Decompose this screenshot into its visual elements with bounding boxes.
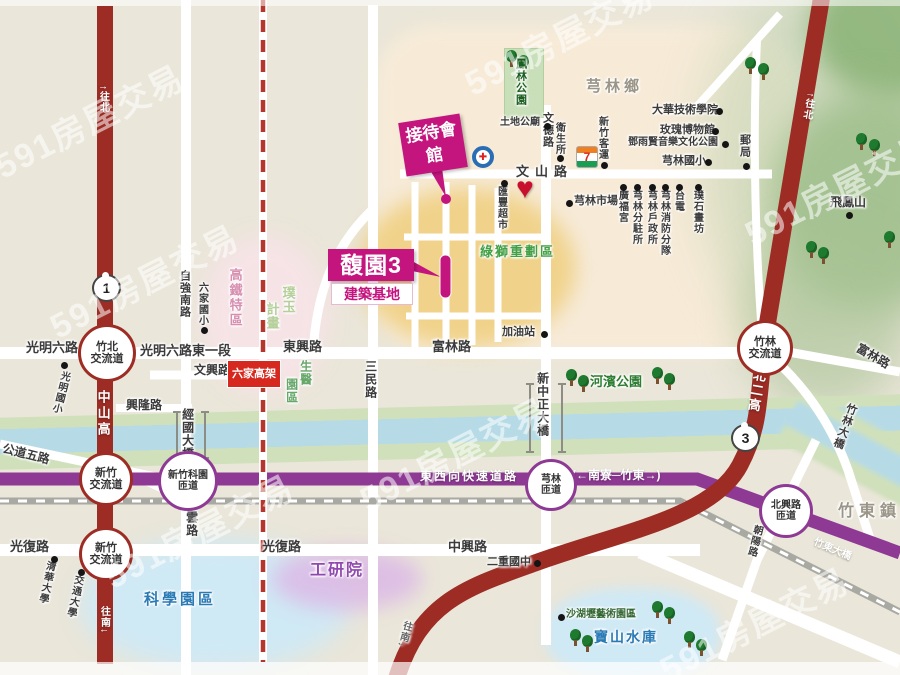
map-label-24: 工研院 bbox=[310, 563, 364, 580]
tree-icon bbox=[869, 139, 880, 156]
tree-icon bbox=[664, 373, 675, 390]
map-label-5: 興隆路 bbox=[126, 399, 162, 412]
map-label-23: 科學園區 bbox=[144, 592, 216, 608]
map-label-1: 光明六路東一段 bbox=[140, 344, 231, 358]
tree-icon bbox=[696, 639, 707, 656]
map-label-28: (←南寮─竹東→) bbox=[572, 469, 661, 482]
interchange-label: 新竹 bbox=[95, 542, 117, 554]
poi-dot bbox=[541, 331, 548, 338]
map-label-33: 新中正大橋 bbox=[536, 372, 549, 437]
interchange-label: 竹林 bbox=[754, 336, 776, 348]
map-label-7: 光復路 bbox=[262, 540, 301, 554]
map-label-44: 璞玉 bbox=[281, 286, 295, 314]
tree-icon bbox=[652, 601, 663, 618]
map-label-46: 生醫 bbox=[299, 360, 312, 386]
poi-dot bbox=[51, 556, 58, 563]
poi-dot bbox=[557, 155, 564, 162]
map-label-38: 衛生所 bbox=[553, 122, 564, 155]
poi-dot bbox=[601, 162, 608, 169]
map-label-26: 沙湖壢藝術園區 bbox=[566, 610, 636, 621]
poi-dot bbox=[534, 560, 541, 567]
project-name-callout: 馥園3 bbox=[328, 249, 414, 281]
poi-dot bbox=[716, 108, 723, 115]
map-canvas: 7 ✚ ♥ 接待會館 馥園3 建築基地 六家高架 光明六路光明六路東一段東興路富… bbox=[0, 0, 900, 675]
poi-dot bbox=[676, 184, 683, 191]
tree-icon bbox=[664, 607, 675, 624]
map-label-19: 芎林鄉 bbox=[586, 79, 643, 95]
map-label-21: 河濱公園 bbox=[590, 375, 642, 389]
tree-icon bbox=[758, 63, 769, 80]
interchange-label: 新竹 bbox=[95, 467, 117, 479]
tree-icon bbox=[856, 133, 867, 150]
map-label-43: 高鐵特區 bbox=[228, 268, 242, 328]
map-label-55: 芎林戶政所 bbox=[645, 190, 656, 245]
poi-dot bbox=[558, 614, 565, 621]
interchange-badge: 新竹交流道 bbox=[79, 527, 133, 581]
interchange-label: 交流道 bbox=[90, 554, 123, 566]
hsr-station-box: 六家高架 bbox=[227, 360, 281, 388]
map-label-56: 芎林消防分隊 bbox=[658, 190, 669, 256]
motel-heart-icon: ♥ bbox=[516, 174, 534, 204]
poi-dot bbox=[662, 184, 669, 191]
interchange-label: 匝道 bbox=[178, 481, 198, 492]
map-label-41: 自強南路 bbox=[178, 270, 190, 318]
map-label-22: 綠獅重劃區 bbox=[480, 245, 555, 259]
interchange-label: 芎林 bbox=[541, 474, 561, 485]
interchange-badge: 新竹交流道 bbox=[79, 452, 133, 506]
tree-icon bbox=[570, 629, 581, 646]
tree-icon bbox=[684, 631, 695, 648]
interchange-badge: 芎林匝道 bbox=[525, 459, 577, 511]
tree-icon bbox=[566, 369, 577, 386]
interchange-label: 北興路 bbox=[771, 500, 801, 511]
interchange-badge: 北興路匝道 bbox=[759, 484, 813, 538]
map-label-4: 文興路 bbox=[194, 364, 230, 377]
interchange-badge: 竹林交流道 bbox=[737, 320, 793, 376]
poi-dot bbox=[544, 123, 551, 130]
map-label-42: 六家國小 bbox=[196, 282, 207, 326]
interchange-label: 匝道 bbox=[541, 485, 561, 496]
interchange-label: 新竹科園 bbox=[168, 470, 208, 481]
map-label-12: 二重國中 bbox=[487, 557, 531, 569]
poi-dot bbox=[705, 159, 712, 166]
map-label-2: 東興路 bbox=[283, 340, 322, 354]
interchange-label: 竹北 bbox=[96, 341, 118, 353]
site-marker bbox=[440, 255, 451, 298]
reception-dot bbox=[441, 194, 451, 204]
tree-icon bbox=[582, 635, 593, 652]
map-label-37: 文德路 bbox=[541, 112, 553, 148]
poi-dot bbox=[201, 327, 208, 334]
map-label-13: 芎林市場 bbox=[574, 196, 618, 208]
map-label-27: 東西向快速道路 bbox=[420, 470, 518, 483]
map-label-25: 寶山水庫 bbox=[594, 630, 658, 645]
map-label-20: 竹東鎮 bbox=[838, 504, 900, 521]
poi-dot bbox=[634, 184, 641, 191]
interchange-badge: 新竹科園匝道 bbox=[158, 451, 218, 511]
seven-eleven-icon: 7 bbox=[576, 146, 598, 168]
map-label-63: 往南↓ bbox=[98, 606, 109, 634]
map-label-53: 廣福宮 bbox=[616, 190, 627, 223]
map-label-52: 郵局 bbox=[738, 134, 750, 158]
interchange-badge: 竹北交流道 bbox=[78, 324, 136, 382]
project-subtitle-callout: 建築基地 bbox=[331, 283, 413, 305]
map-label-65: 鳳林公園 bbox=[514, 58, 526, 106]
tree-icon bbox=[652, 367, 663, 384]
interchange-label: 交流道 bbox=[90, 479, 123, 491]
map-label-8: 中興路 bbox=[448, 540, 487, 554]
poi-dot bbox=[722, 141, 729, 148]
map-label-15: 玫瑰博物館 bbox=[660, 125, 715, 137]
poi-dot bbox=[846, 212, 853, 219]
map-label-18: 飛鳳山 bbox=[830, 196, 866, 209]
interchange-label: 交流道 bbox=[749, 348, 782, 360]
highway-3-shield: 3 bbox=[731, 424, 760, 452]
poi-dot bbox=[649, 184, 656, 191]
highway-1-shield: 1 bbox=[92, 274, 121, 302]
reception-hall-callout: 接待會館 bbox=[398, 113, 468, 176]
map-label-36: 三民路 bbox=[364, 360, 377, 399]
map-label-11: 加油站 bbox=[502, 327, 535, 339]
tree-icon bbox=[745, 57, 756, 74]
clinic-icon: ✚ bbox=[472, 146, 494, 168]
poi-dot bbox=[566, 200, 573, 207]
map-label-57: 台電 bbox=[672, 190, 683, 212]
poi-dot bbox=[61, 362, 68, 369]
map-label-0: 光明六路 bbox=[26, 341, 78, 355]
poi-dot bbox=[712, 128, 719, 135]
poi-dot bbox=[501, 180, 508, 187]
map-label-6: 光復路 bbox=[10, 540, 49, 554]
tree-icon bbox=[578, 375, 589, 392]
map-label-16: 鄧雨賢音樂文化公園 bbox=[628, 138, 718, 149]
map-label-47: 園區 bbox=[285, 378, 298, 404]
tree-icon bbox=[884, 231, 895, 248]
poi-dot bbox=[620, 184, 627, 191]
map-label-61: ↑往北 bbox=[97, 85, 108, 113]
map-label-10: 土地公廟 bbox=[500, 118, 540, 129]
map-label-58: 璞石畫坊 bbox=[691, 190, 702, 234]
tree-icon bbox=[806, 241, 817, 258]
map-label-45: 計畫 bbox=[265, 302, 279, 330]
interchange-label: 交流道 bbox=[91, 353, 124, 365]
map-label-17: 芎林國小 bbox=[662, 156, 706, 168]
interchange-label: 匝道 bbox=[776, 511, 796, 522]
poi-dot bbox=[695, 184, 702, 191]
poi-dot bbox=[743, 163, 750, 170]
map-label-54: 芎林分駐所 bbox=[630, 190, 641, 245]
map-label-3: 富林路 bbox=[432, 340, 471, 354]
map-label-14: 大華技術學院 bbox=[652, 105, 718, 117]
map-label-59: 中山高 bbox=[96, 390, 110, 438]
tree-icon bbox=[818, 247, 829, 264]
map-label-39: 匯豐超市 bbox=[495, 186, 506, 230]
